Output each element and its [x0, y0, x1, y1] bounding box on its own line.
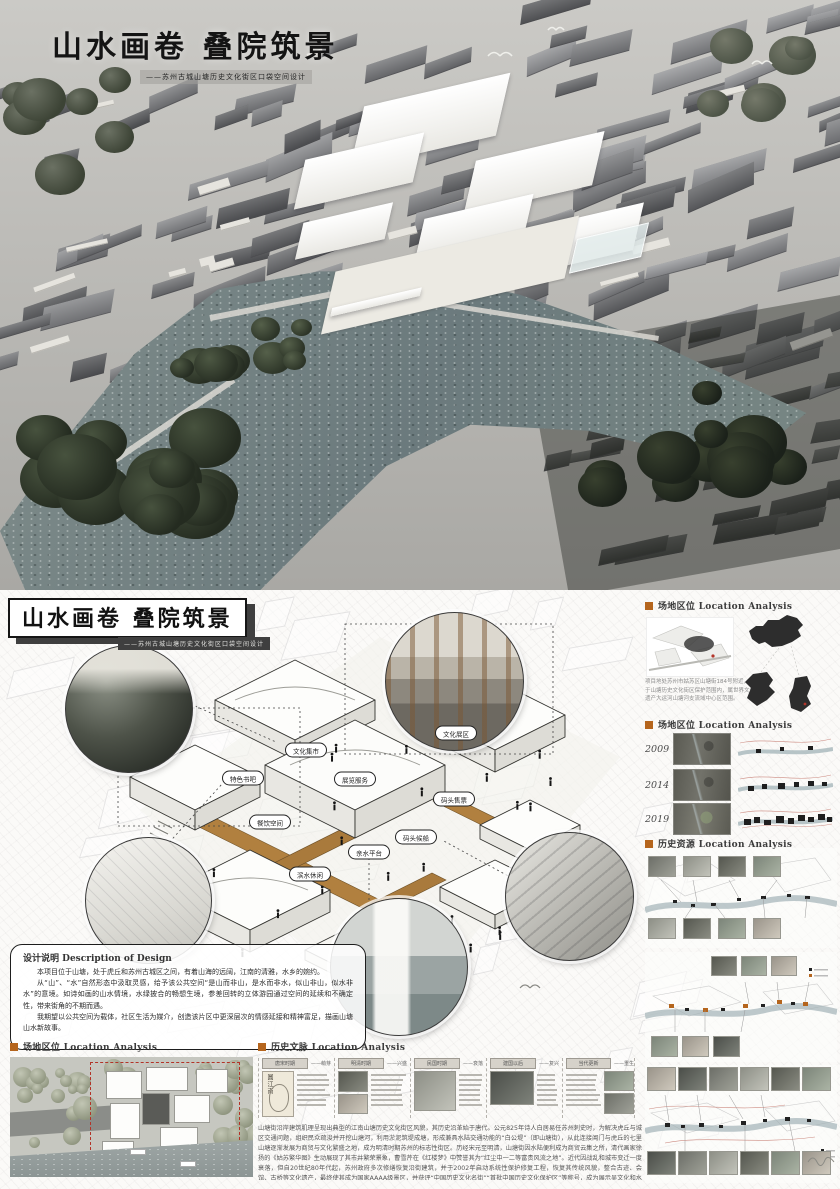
- text-line: [297, 1099, 326, 1102]
- section-marker-icon: [645, 602, 653, 610]
- design-note-paragraph: 从“山”、“水”自然形态中汲取灵感，给予该公共空间“是山而非山，是水而非水，似山…: [23, 978, 353, 1012]
- aerial-render: 山水画卷 叠院筑景 ——苏州古城山塘历史文化街区口袋空间设计: [0, 0, 840, 590]
- photo-thumbnail: [802, 1067, 831, 1091]
- photo-thumbnail: [683, 918, 711, 939]
- photo-strip: [648, 918, 781, 939]
- photo-thumbnail: [709, 1151, 738, 1175]
- photo-thumbnail: [713, 1036, 740, 1057]
- old-map-image: 圆江南: [262, 1071, 294, 1117]
- section-marker-icon: [645, 840, 653, 848]
- photo-thumbnail: [740, 1067, 769, 1091]
- history-photo: [604, 1093, 634, 1114]
- plan-tag: [180, 1161, 196, 1167]
- era-label: 当代更新: [566, 1058, 611, 1069]
- plan-tag: [130, 1149, 146, 1155]
- section-header-history-res: 历史资源 Location Analysis: [645, 837, 792, 850]
- text-line: [459, 1084, 481, 1087]
- year-label: 2009: [645, 744, 673, 755]
- photo-thumbnail: [771, 1151, 800, 1175]
- satellite-image: [673, 733, 731, 765]
- design-note-heading: 设计说明 Description of Design: [23, 951, 353, 964]
- plan-tree: [77, 1084, 87, 1094]
- year-label: 2014: [645, 780, 673, 791]
- photo-strip: [648, 856, 781, 877]
- diagram-label: 文化展区: [435, 726, 477, 741]
- text-line: [566, 1094, 600, 1097]
- section-title: 场地区位 Location Analysis: [658, 599, 792, 612]
- history-card: 民国时期——衰落: [410, 1058, 483, 1118]
- text-line: [459, 1079, 482, 1082]
- history-card: 明清时期——兴盛: [334, 1058, 407, 1118]
- china-map: [749, 615, 803, 647]
- presentation-board: 山水画卷 叠院筑景 ——苏州古城山塘历史文化街区口袋空间设计 山水画卷 叠院筑景…: [0, 0, 840, 1189]
- era-tag: ——衰落: [463, 1060, 483, 1067]
- text-line: [459, 1089, 480, 1092]
- plan-tree: [68, 1085, 77, 1094]
- design-note-paragraph: 我期望以公共空间为载体，社区生活为媒介，创造该片区中更深层次的情感延接和精神富足…: [23, 1012, 353, 1034]
- photo-thumbnail: [682, 1036, 709, 1057]
- suzhou-map: [789, 676, 811, 712]
- section-header-history: 历史文脉 Location Analysis: [258, 1040, 405, 1053]
- diagram-label: 滨水休闲: [289, 867, 331, 882]
- era-tag: ——萌芽: [311, 1060, 331, 1067]
- growth-diagram: [738, 734, 833, 764]
- text-line: [537, 1099, 556, 1102]
- vignette-axon-view: [505, 832, 634, 961]
- text-line: [459, 1074, 482, 1077]
- plan-tree: [32, 1083, 43, 1094]
- diagram-label: 文化集市: [285, 743, 327, 758]
- diagram-label: 码头售票: [433, 792, 475, 807]
- diagram-label: 亲水平台: [348, 845, 390, 860]
- text-line: [566, 1074, 597, 1077]
- region-maps: [735, 612, 840, 714]
- text-line: [297, 1104, 326, 1107]
- text-line: [297, 1094, 330, 1097]
- photo-thumbnail: [683, 856, 711, 877]
- photo-strip: [651, 1036, 740, 1057]
- map-seal-text: 圆江南: [265, 1074, 274, 1095]
- growth-diagram: [738, 770, 833, 800]
- text-line: [566, 1099, 598, 1102]
- plan-tree: [17, 1088, 33, 1104]
- poster-subtitle: ——苏州古城山塘历史文化街区口袋空间设计: [140, 70, 312, 84]
- poster-title: 山水画卷 叠院筑景: [52, 22, 338, 66]
- section-header-location1: 场地区位 Location Analysis: [645, 599, 792, 612]
- signature-scribble: [806, 1150, 836, 1168]
- text-line: [459, 1094, 480, 1097]
- satellite-image: [673, 803, 731, 835]
- poster-title-block: 山水画卷 叠院筑景 ——苏州古城山塘历史文化街区口袋空间设计: [52, 22, 338, 84]
- text-line: [297, 1074, 327, 1077]
- section-title: 历史文脉 Location Analysis: [271, 1040, 405, 1053]
- diagram-label: 特色书吧: [222, 771, 264, 786]
- era-label: 明清时期: [338, 1058, 384, 1069]
- era-label: 建国以后: [490, 1058, 536, 1069]
- site-plan: [10, 1057, 253, 1177]
- design-note: 设计说明 Description of Design 本项目位于山塘，处于虎丘和…: [10, 944, 366, 1050]
- text-line: [537, 1089, 557, 1092]
- photo-thumbnail: [740, 1151, 769, 1175]
- photo-strip: [711, 956, 797, 976]
- board-title: 山水画卷 叠院筑景: [8, 598, 247, 638]
- text-line: [459, 1104, 482, 1107]
- text-placeholder: [459, 1071, 483, 1111]
- photo-thumbnail: [651, 1036, 678, 1057]
- timeline-row: 2014: [645, 769, 837, 801]
- history-photo: [604, 1071, 634, 1091]
- history-photo: [338, 1071, 368, 1092]
- growth-diagram: [738, 804, 833, 834]
- text-line: [537, 1074, 555, 1077]
- history-card: 唐宋时期——萌芽 圆江南: [258, 1058, 331, 1118]
- timeline-row: 2019: [645, 803, 837, 835]
- section-marker-icon: [645, 721, 653, 729]
- text-line: [371, 1089, 401, 1092]
- text-line: [537, 1094, 557, 1097]
- text-line: [537, 1084, 555, 1087]
- legend: [809, 968, 828, 977]
- photo-thumbnail: [648, 856, 676, 877]
- text-line: [297, 1084, 329, 1087]
- text-line: [566, 1089, 596, 1092]
- text-line: [297, 1089, 325, 1092]
- history-timeline: 唐宋时期——萌芽 圆江南 明清时期——兴盛 民国时期——衰落 建国以后——复兴 …: [258, 1058, 640, 1118]
- text-placeholder: [537, 1071, 559, 1109]
- photo-thumbnail: [647, 1067, 676, 1091]
- diagram-label: 展览服务: [334, 772, 376, 787]
- vignette-photo-trees: [65, 645, 193, 773]
- text-line: [566, 1079, 596, 1082]
- photo-thumbnail: [718, 918, 746, 939]
- history-photo: [490, 1071, 534, 1105]
- text-line: [371, 1094, 402, 1097]
- plan-tree: [51, 1089, 65, 1103]
- era-tag: ——复兴: [539, 1060, 559, 1067]
- photo-thumbnail: [741, 956, 767, 976]
- text-placeholder: [566, 1071, 601, 1114]
- history-card: 建国以后——复兴: [486, 1058, 559, 1118]
- text-line: [371, 1074, 406, 1077]
- diagram-label: 码头候船: [395, 830, 437, 845]
- section-marker-icon: [258, 1043, 266, 1051]
- section-title: 场地区位 Location Analysis: [658, 718, 792, 731]
- history-map-figure: [645, 952, 837, 1062]
- section-header-siteplan: 场地区位 Location Analysis: [10, 1040, 157, 1053]
- photo-thumbnail: [771, 956, 797, 976]
- board-subtitle: ——苏州古城山塘历史文化街区口袋空间设计: [118, 637, 270, 650]
- text-line: [371, 1079, 403, 1082]
- photo-thumbnail: [647, 1151, 676, 1175]
- text-line: [537, 1079, 555, 1082]
- jiangsu-map: [745, 672, 775, 706]
- photo-thumbnail: [753, 856, 781, 877]
- plan-tree: [238, 1065, 253, 1084]
- timeline-row: 2009: [645, 733, 837, 765]
- section-title: 历史资源 Location Analysis: [658, 837, 792, 850]
- photo-thumbnail: [678, 1067, 707, 1091]
- text-line: [566, 1104, 601, 1107]
- site-dot: [711, 654, 714, 657]
- text-line: [566, 1084, 595, 1087]
- photo-thumbnail: [711, 956, 737, 976]
- text-line: [537, 1104, 558, 1107]
- era-tag: ——重生: [614, 1060, 634, 1067]
- analysis-board: 山水画卷 叠院筑景 ——苏州古城山塘历史文化街区口袋空间设计: [0, 590, 840, 1189]
- photo-thumbnail: [709, 1067, 738, 1091]
- history-paragraph: 山塘街沿岸建筑肌理呈现出典型的江南山塘历史文化街区风貌，其历史沿革始于唐代。公元…: [258, 1124, 642, 1180]
- sketch-building: [6, 657, 75, 700]
- section-header-location2: 场地区位 Location Analysis: [645, 718, 792, 731]
- history-photo: [414, 1071, 456, 1111]
- year-label: 2019: [645, 814, 673, 825]
- photo-thumbnail: [771, 1067, 800, 1091]
- photo-thumbnail: [678, 1151, 707, 1175]
- design-note-paragraph: 本项目位于山塘，处于虎丘和苏州古城区之间，有着山海的远阔，江南的清雅，水乡的婉约…: [23, 967, 353, 978]
- text-line: [371, 1099, 402, 1102]
- era-label: 民国时期: [414, 1058, 460, 1069]
- photo-thumbnail: [753, 918, 781, 939]
- text-line: [371, 1104, 403, 1107]
- text-placeholder: [297, 1071, 331, 1117]
- section-marker-icon: [10, 1043, 18, 1051]
- seagull-icon: [0, 0, 840, 590]
- history-map-figure: [645, 848, 837, 948]
- text-line: [297, 1079, 329, 1082]
- plan-tree: [63, 1127, 81, 1145]
- board-title-text: 山水画卷 叠院筑景: [22, 607, 233, 632]
- history-card: 当代更新——重生: [562, 1058, 635, 1118]
- era-label: 唐宋时期: [262, 1058, 308, 1069]
- satellite-image: [673, 769, 731, 801]
- section-title: 场地区位 Location Analysis: [23, 1040, 157, 1053]
- text-line: [371, 1084, 402, 1087]
- era-tag: ——兴盛: [387, 1060, 407, 1067]
- photo-thumbnail: [718, 856, 746, 877]
- photo-strip: [647, 1067, 831, 1091]
- text-line: [459, 1099, 480, 1102]
- text-placeholder: [371, 1071, 407, 1114]
- plan-tree: [30, 1068, 46, 1084]
- history-photo: [338, 1094, 368, 1114]
- photo-strip: [647, 1151, 831, 1175]
- site-sketch: [646, 617, 734, 677]
- diagram-label: 餐饮空间: [249, 815, 291, 830]
- plan-tree: [29, 1137, 41, 1149]
- photo-thumbnail: [648, 918, 676, 939]
